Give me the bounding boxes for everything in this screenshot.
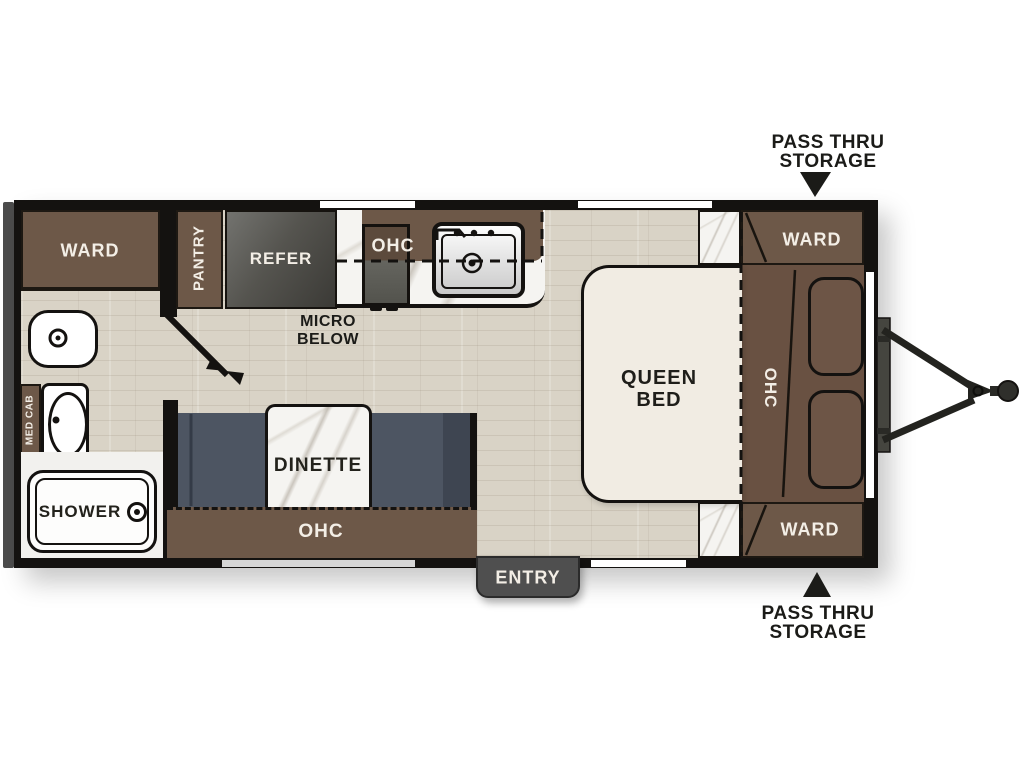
kitchen-sink bbox=[432, 222, 525, 298]
window-bottom-bedroom bbox=[591, 560, 686, 567]
pass-thru-top-label: PASS THRU STORAGE bbox=[772, 133, 885, 171]
queen-bed-label: QUEEN BED bbox=[621, 367, 697, 411]
pass-thru-top-line1: PASS THRU bbox=[772, 133, 885, 152]
pass-thru-arrow-bottom bbox=[803, 572, 831, 597]
pass-thru-bottom-line1: PASS THRU bbox=[762, 604, 875, 623]
pass-thru-bottom-line2: STORAGE bbox=[762, 623, 875, 642]
dinette-ohc-label: OHC bbox=[298, 521, 343, 543]
pass-thru-bottom-label: PASS THRU STORAGE bbox=[762, 604, 875, 642]
micro-below-line1: MICRO bbox=[297, 313, 359, 331]
entry-label: ENTRY bbox=[495, 568, 560, 589]
window-front-wall bbox=[866, 272, 874, 498]
kitchen-sink-basin bbox=[441, 234, 516, 289]
bath-sink-vanity bbox=[41, 383, 89, 460]
pillow-bottom bbox=[808, 390, 864, 489]
window-bottom-dinette bbox=[222, 560, 415, 567]
queen-bed-line1: QUEEN bbox=[621, 367, 697, 389]
pass-thru-top-line2: STORAGE bbox=[772, 152, 885, 171]
rear-bumper bbox=[3, 202, 14, 568]
wardrobe-front-top-label: WARD bbox=[783, 230, 842, 251]
bath-sink-basin bbox=[48, 392, 88, 457]
dinette-end-wall bbox=[470, 413, 477, 507]
dinette-label: DINETTE bbox=[274, 455, 362, 477]
wardrobe-front-bottom-label: WARD bbox=[781, 520, 840, 541]
bath-wall-upper bbox=[160, 207, 177, 317]
toilet bbox=[28, 310, 98, 368]
queen-bed-line2: BED bbox=[621, 389, 697, 411]
window-top-kitchen bbox=[320, 201, 415, 208]
pass-thru-arrow-top bbox=[800, 172, 831, 197]
bedside-marble-top bbox=[698, 210, 741, 265]
dinette-bench-end bbox=[443, 413, 470, 507]
bed-ohc-label: OHC bbox=[760, 368, 780, 409]
floor-plan: WARD PANTRY REFER OHC MICRO BELOW MED CA… bbox=[0, 0, 1024, 768]
med-cab-label: MED CAB bbox=[25, 395, 36, 445]
hitch-icon bbox=[877, 318, 1018, 452]
window-top-bedroom bbox=[578, 201, 712, 208]
pillow-top bbox=[808, 277, 864, 376]
kitchen-ohc-label: OHC bbox=[372, 236, 415, 257]
shower-label: SHOWER bbox=[39, 502, 122, 522]
micro-below-label: MICRO BELOW bbox=[297, 313, 359, 349]
wardrobe-rear-label: WARD bbox=[61, 241, 120, 262]
micro-below-line2: BELOW bbox=[297, 331, 359, 349]
bedside-marble-bottom bbox=[698, 502, 741, 558]
refer-label: REFER bbox=[250, 249, 313, 269]
pantry-label: PANTRY bbox=[191, 225, 208, 291]
